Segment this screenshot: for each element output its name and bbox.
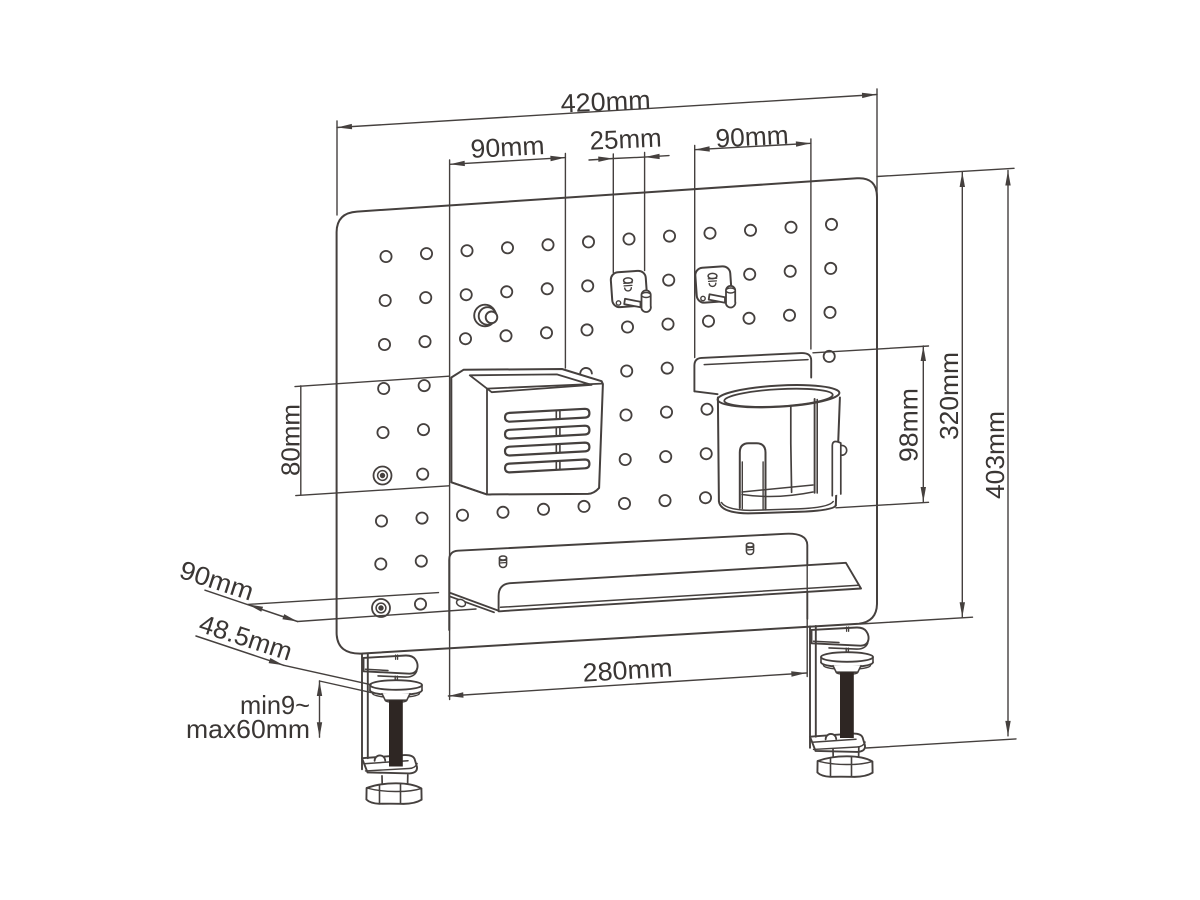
svg-text:90mm: 90mm [715, 120, 789, 154]
svg-text:80mm: 80mm [276, 404, 306, 476]
svg-text:48.5mm: 48.5mm [195, 608, 296, 666]
svg-text:320mm: 320mm [934, 352, 964, 440]
svg-text:90mm: 90mm [470, 130, 545, 164]
svg-text:25mm: 25mm [589, 122, 662, 155]
svg-text:90mm: 90mm [176, 554, 258, 606]
svg-text:max60mm: max60mm [186, 714, 310, 744]
svg-text:280mm: 280mm [582, 652, 674, 687]
svg-text:403mm: 403mm [980, 411, 1010, 499]
svg-text:420mm: 420mm [560, 85, 651, 119]
svg-text:98mm: 98mm [894, 388, 924, 462]
